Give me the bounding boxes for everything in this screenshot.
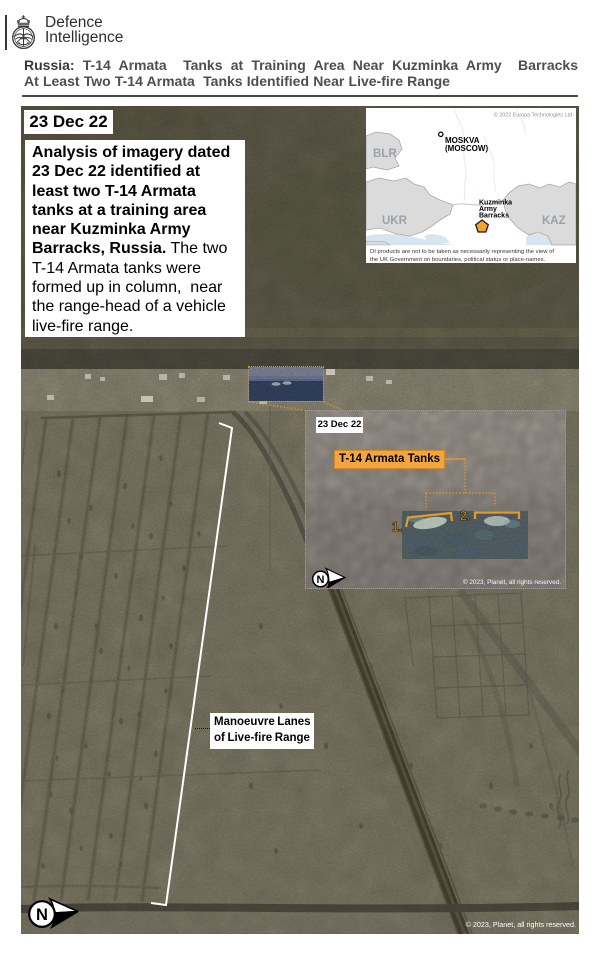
svg-text:DI products are not to be take: DI products are not to be taken as neces… bbox=[370, 249, 554, 255]
svg-text:Barracks: Barracks bbox=[479, 213, 509, 220]
svg-text:N: N bbox=[36, 906, 48, 924]
svg-text:(MOSCOW): (MOSCOW) bbox=[445, 144, 488, 153]
svg-text:© 2023, Planet, all rights r: © 2023, Planet, all rights reserved. bbox=[463, 578, 561, 586]
svg-text:BLR: BLR bbox=[373, 148, 397, 160]
svg-text:UKR: UKR bbox=[382, 215, 408, 227]
svg-text:the UK Government on boundari: the UK Government on boundaries, politic… bbox=[370, 257, 546, 263]
svg-text:KAZ: KAZ bbox=[542, 215, 566, 227]
svg-text:N: N bbox=[317, 574, 325, 586]
svg-text:© 2022 Europa Technologies Ltd: © 2022 Europa Technologies Ltd bbox=[494, 112, 572, 119]
